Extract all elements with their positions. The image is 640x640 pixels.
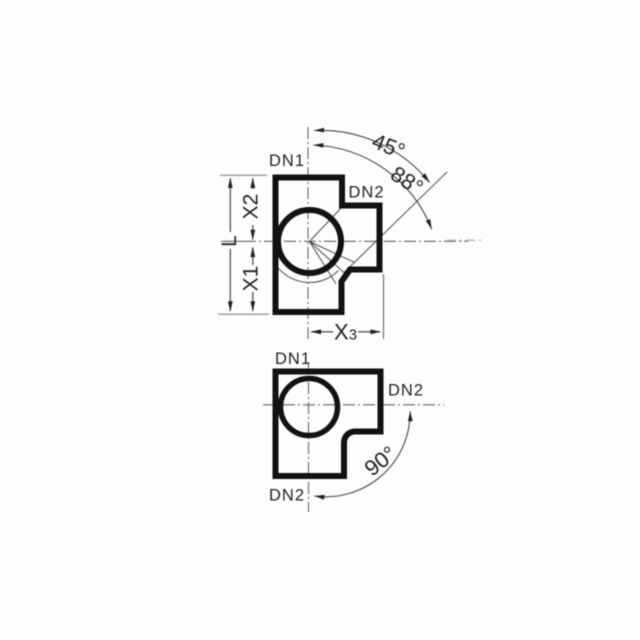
svg-text:X2: X2 bbox=[240, 194, 263, 220]
svg-text:L: L bbox=[218, 235, 241, 247]
svg-text:DN2: DN2 bbox=[269, 487, 305, 505]
svg-text:X1: X1 bbox=[240, 266, 263, 292]
svg-text:DN1: DN1 bbox=[269, 152, 305, 170]
svg-text:DN2: DN2 bbox=[349, 184, 385, 202]
svg-text:DN1: DN1 bbox=[275, 350, 311, 368]
svg-text:DN2: DN2 bbox=[388, 382, 424, 400]
